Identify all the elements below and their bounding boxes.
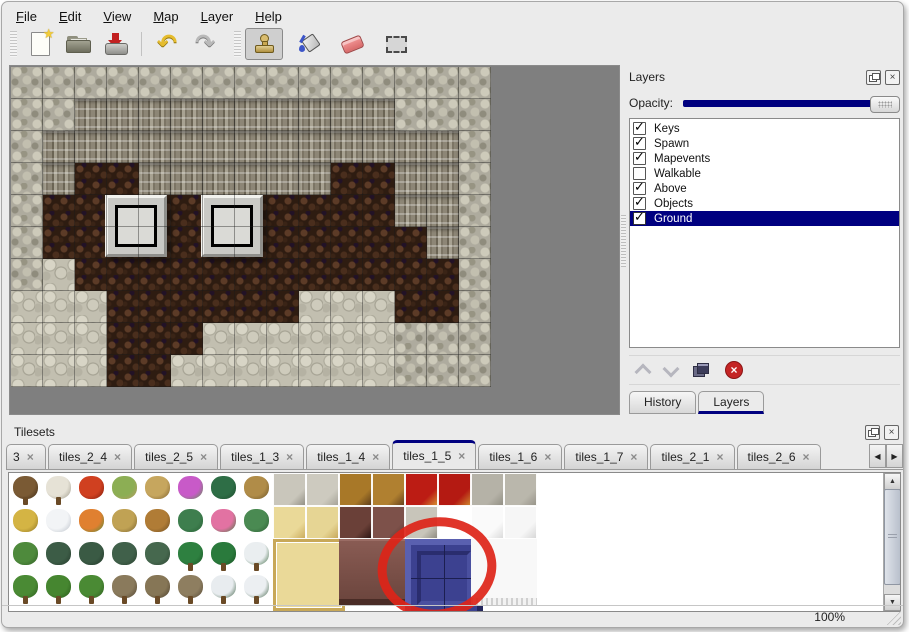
map-tile-scale-stone-wall[interactable] [11,131,43,163]
paint-bucket-icon [297,34,319,54]
tileset-cell-wood-table-top[interactable] [372,473,405,506]
delete-layer-icon[interactable]: × [725,361,743,379]
tile-art-orange-flowers [79,509,104,532]
map-tile-brown-cave-floor[interactable] [171,291,203,323]
map-tile-cliff-face[interactable] [299,163,331,195]
panel-tab-history[interactable]: History [629,391,696,414]
check-icon: ✓ [634,149,645,165]
splitter-handle[interactable] [621,215,626,267]
white-fluff-tile[interactable] [471,539,537,605]
map-tile-cliff-face[interactable] [395,163,427,195]
tileset-cell-hay-mound[interactable] [9,506,42,539]
tileset-cell-lily-pad[interactable] [240,506,273,539]
map-tile-scale-stone-wall[interactable] [427,323,459,355]
map-tile-light-rubble[interactable] [299,291,331,323]
map-tile-scale-stone-wall[interactable] [459,259,491,291]
tile-art-sprouts [13,542,38,565]
map-tile-scale-stone-wall[interactable] [75,67,107,99]
tileset-cell-gray-stone[interactable] [504,473,537,506]
map-tile-brown-cave-floor[interactable] [427,291,459,323]
tileset-cell-orange-flowers[interactable] [75,506,108,539]
menu-help[interactable]: Help [255,9,282,24]
tileset-cell-conifer[interactable] [42,572,75,605]
tab-close-icon[interactable]: × [114,450,121,464]
layer-row-walkable[interactable]: Walkable [630,166,899,181]
map-tile-brown-cave-floor[interactable] [203,291,235,323]
map-tile-cliff-face[interactable] [363,99,395,131]
tile-trunk [254,596,259,604]
tileset-cell-dry-grass[interactable] [108,506,141,539]
layer-name: Above [654,183,687,195]
tileset-cell-stone-floor[interactable] [306,473,339,506]
map-tile-brown-cave-floor[interactable] [235,291,267,323]
map-tile-cliff-face[interactable] [139,131,171,163]
map-tile-scale-stone-wall[interactable] [459,163,491,195]
map-tile-brown-cave-floor[interactable] [395,227,427,259]
tileset-cell-gray-stone[interactable] [471,473,504,506]
map-tile-cliff-face[interactable] [395,195,427,227]
tileset-cell-birch-tree[interactable] [42,473,75,506]
tilesets-panel: Tilesets × 3×tiles_2_4×tiles_2_5×tiles_1… [6,421,903,612]
tileset-cell-mat-corner[interactable] [273,506,306,539]
map-tile-scale-stone-wall[interactable] [11,67,43,99]
map-tile-cliff-face[interactable] [107,99,139,131]
tileset-cell-dead-tree[interactable] [141,572,174,605]
tileset-tab-tiles_1_3[interactable]: tiles_1_3× [220,444,304,469]
tileset-cell-stone-pillar[interactable] [405,506,438,539]
map-tile-brown-cave-floor[interactable] [107,355,139,387]
tileset-cell-snow-pine[interactable] [207,572,240,605]
tileset-cell-leaves[interactable] [141,506,174,539]
map-tile-scale-stone-wall[interactable] [11,195,43,227]
map-tile-brown-cave-floor[interactable] [107,323,139,355]
map-tile-light-rubble[interactable] [203,323,235,355]
map-tile-cliff-face[interactable] [235,99,267,131]
tileset-cell-brown-block[interactable] [372,506,405,539]
map-tile-scale-stone-wall[interactable] [203,67,235,99]
layer-name: Ground [654,213,692,225]
map-tile-light-rubble[interactable] [75,323,107,355]
map-tile-scale-stone-wall[interactable] [11,227,43,259]
map-tile-light-rubble[interactable] [11,355,43,387]
map-tile-brown-cave-floor[interactable] [139,291,171,323]
map-tile-light-rubble[interactable] [43,291,75,323]
tile-art-dry-grass [112,509,137,532]
map-tile-cliff-face[interactable] [171,163,203,195]
map-tile-scale-stone-wall[interactable] [427,355,459,387]
map-tile-brown-cave-floor[interactable] [139,259,171,291]
save-button[interactable] [97,28,135,60]
tileset-tab-tiles_1_4[interactable]: tiles_1_4× [306,444,390,469]
layer-row-ground[interactable]: ✓Ground [630,211,899,226]
tab-close-icon[interactable]: × [27,450,34,464]
opacity-slider[interactable] [681,95,900,111]
vertical-splitter[interactable] [621,65,627,413]
map-tile-scale-stone-wall[interactable] [459,131,491,163]
map-tile-brown-cave-floor[interactable] [299,259,331,291]
map-tile-scale-stone-wall[interactable] [459,67,491,99]
app-window: File Edit View Map Layer Help ★ ↶ ↷ [1,1,904,628]
opacity-slider-handle[interactable] [870,96,900,113]
map-tile-light-rubble[interactable] [299,355,331,387]
map-tile-brown-cave-floor[interactable] [203,259,235,291]
map-tile-scale-stone-wall[interactable] [459,355,491,387]
map-tile-light-rubble[interactable] [331,291,363,323]
tileset-cell-wood-table-top[interactable] [339,473,372,506]
zoom-level: 100% [814,610,845,624]
tilesets-float-icon[interactable] [865,425,880,440]
map-tile-scale-stone-wall[interactable] [395,323,427,355]
move-layer-up-icon[interactable] [635,364,652,381]
large-mat-tile[interactable] [273,539,345,611]
tileset-tab-tiles_2_4[interactable]: tiles_2_4× [48,444,132,469]
map-tile-brown-cave-floor[interactable] [363,259,395,291]
tileset-cell-dark-bush[interactable] [75,539,108,572]
map-tile-scale-stone-wall[interactable] [11,259,43,291]
map-tile-brown-cave-floor[interactable] [267,259,299,291]
map-tile-cliff-face[interactable] [139,163,171,195]
tileset-cell-dead-tree[interactable] [9,473,42,506]
save-icon [104,33,128,55]
tab-close-icon[interactable]: × [372,450,379,464]
tile-trunk [56,497,61,505]
map-tile-scale-stone-wall[interactable] [459,291,491,323]
map-tile-light-rubble[interactable] [363,291,395,323]
tile-art-dead-tree [112,575,137,598]
duplicate-layer-icon[interactable] [693,363,709,377]
tab-close-icon[interactable]: × [630,450,637,464]
map-tile-scale-stone-wall[interactable] [11,99,43,131]
map-tile-brown-cave-floor[interactable] [331,259,363,291]
map-tile-brown-cave-floor[interactable] [331,163,363,195]
tab-close-icon[interactable]: × [286,450,293,464]
map-tile-brown-cave-floor[interactable] [331,227,363,259]
eraser-tool-button[interactable] [333,28,371,60]
redo-button[interactable]: ↷ [186,28,224,60]
map-tile-brown-cave-floor[interactable] [171,259,203,291]
tileset-cell-red-carpet[interactable] [438,473,471,506]
map-tile-cliff-face[interactable] [267,131,299,163]
eraser-icon [340,34,364,54]
map-tile-brown-cave-floor[interactable] [171,227,203,259]
tileset-cell-palm-tree[interactable] [174,539,207,572]
map-tile-brown-cave-floor[interactable] [107,291,139,323]
select-tool-button[interactable] [377,28,415,60]
map-tile-brown-cave-floor[interactable] [395,291,427,323]
layer-checkbox[interactable]: ✓ [633,212,646,225]
map-tile-cliff-face[interactable] [299,99,331,131]
map-tile-cliff-face[interactable] [427,131,459,163]
tileset-cell-dead-shrub[interactable] [240,473,273,506]
tile-trunk [221,563,226,571]
map-tile-scale-stone-wall[interactable] [299,67,331,99]
menu-layer[interactable]: Layer [201,9,234,24]
map-tile-light-rubble[interactable] [235,323,267,355]
tileset-tab-tiles_1_5[interactable]: tiles_1_5× [392,440,476,469]
tileset-cell-red-flower[interactable] [75,473,108,506]
map-tile-brown-cave-floor[interactable] [427,259,459,291]
map-tile-brown-cave-floor[interactable] [107,259,139,291]
map-tile-light-rubble[interactable] [11,323,43,355]
large-table-tile[interactable] [339,539,405,605]
new-file-button[interactable]: ★ [21,28,59,60]
map-tile-scale-stone-wall[interactable] [11,163,43,195]
map-tile-brown-cave-floor[interactable] [299,227,331,259]
map-tile-brown-cave-floor[interactable] [75,227,107,259]
map-tile-cliff-face[interactable] [427,163,459,195]
tileset-cell-snow-mound[interactable] [42,506,75,539]
menu-file[interactable]: File [16,9,37,24]
map-tile-brown-cave-floor[interactable] [395,259,427,291]
map-tile-cliff-face[interactable] [75,131,107,163]
layer-row-above[interactable]: ✓Above [630,181,899,196]
fill-tool-button[interactable] [289,28,327,60]
map-tile-brown-cave-floor[interactable] [171,323,203,355]
tileset-cell-snow-pine[interactable] [240,572,273,605]
map-tile-light-rubble[interactable] [235,355,267,387]
map-tile-light-rubble[interactable] [331,355,363,387]
tileset-tab-tiles_2_5[interactable]: tiles_2_5× [134,444,218,469]
map-tile-brown-cave-floor[interactable] [107,163,139,195]
tileset-cell-conifer[interactable] [75,572,108,605]
map-tile-cliff-face[interactable] [43,163,75,195]
tile-art-conifer [79,575,104,598]
map-tile-cliff-face[interactable] [267,99,299,131]
map-tile-cliff-face[interactable] [203,131,235,163]
map-tile-brown-cave-floor[interactable] [363,163,395,195]
tileset-cell-stone-pillar[interactable] [438,506,471,539]
tile-art-red-flower [79,476,104,499]
tab-close-icon[interactable]: × [716,450,723,464]
map-tile-scale-stone-wall[interactable] [139,67,171,99]
tileset-cell-red-carpet[interactable] [405,473,438,506]
scroll-up-button[interactable]: ▲ [884,473,901,490]
layer-row-mapevents[interactable]: ✓Mapevents [630,151,899,166]
tile-art-palm-tree [211,542,236,565]
map-tile-light-rubble[interactable] [267,355,299,387]
tileset-cell-dark-bush[interactable] [108,539,141,572]
map-tile-light-rubble[interactable] [43,323,75,355]
map-tile-cliff-face[interactable] [171,99,203,131]
tab-close-icon[interactable]: × [544,450,551,464]
tab-close-icon[interactable]: × [200,450,207,464]
tileset-cell-snow-tree[interactable] [240,539,273,572]
map-tile-brown-cave-floor[interactable] [363,227,395,259]
tileset-cell-palm-tree[interactable] [207,539,240,572]
tileset-cell-bush[interactable] [141,539,174,572]
tileset-cell-fern[interactable] [207,473,240,506]
resize-grip[interactable] [886,610,901,625]
map-tile-brown-cave-floor[interactable] [235,259,267,291]
map-canvas[interactable] [9,65,620,415]
tileset-cell-mat[interactable] [306,506,339,539]
map-tile-scale-stone-wall[interactable] [107,67,139,99]
map-tile-brown-cave-floor[interactable] [171,195,203,227]
layer-list[interactable]: ✓Keys✓Spawn✓MapeventsWalkable✓Above✓Obje… [629,118,900,348]
tileset-cell-stone-floor-corner[interactable] [273,473,306,506]
toolbar-grip[interactable] [10,31,17,57]
map-tile-brown-cave-floor[interactable] [75,195,107,227]
tile-art-conifer [46,575,71,598]
layer-row-keys[interactable]: ✓Keys [630,121,899,136]
map-tile-scale-stone-wall[interactable] [459,99,491,131]
tileset-cell-dark-chair[interactable] [339,506,372,539]
map-tile-scale-stone-wall[interactable] [331,67,363,99]
tile-art-lily-pad [244,509,269,532]
toolbar-grip-2[interactable] [234,31,241,57]
float-panel-icon[interactable] [866,70,881,85]
map-tile-cliff-face[interactable] [299,131,331,163]
move-layer-down-icon[interactable] [663,361,680,378]
map-tile-scale-stone-wall[interactable] [395,67,427,99]
layer-checkbox[interactable]: ✓ [633,152,646,165]
open-file-button[interactable] [59,28,97,60]
map-tile-brown-cave-floor[interactable] [331,195,363,227]
map-tile-cliff-face[interactable] [107,131,139,163]
layer-row-objects[interactable]: ✓Objects [630,196,899,211]
map-tile-light-rubble[interactable] [171,355,203,387]
tab-close-icon[interactable]: × [458,449,465,463]
map-tile-light-rubble[interactable] [363,323,395,355]
tileset-cell-dark-bush[interactable] [42,539,75,572]
map-tile-scale-stone-wall[interactable] [267,67,299,99]
map-tile-light-rubble[interactable] [299,323,331,355]
tileset-cell-sprouts[interactable] [9,539,42,572]
tab-label: 3 [13,450,20,464]
tab-close-icon[interactable]: × [803,450,810,464]
map-tile-cliff-face[interactable] [139,99,171,131]
tile-art-dead-tree [178,575,203,598]
map-tile-scale-stone-wall[interactable] [459,195,491,227]
map-tile-scale-stone-wall[interactable] [363,67,395,99]
map-tile-cliff-face[interactable] [235,131,267,163]
map-tile-scale-stone-wall[interactable] [459,227,491,259]
tileset-cell-conifer[interactable] [9,572,42,605]
map-tile-cliff-face[interactable] [427,195,459,227]
tileset-cell-trunk[interactable] [141,473,174,506]
tab-scroll-right-button[interactable]: ▶ [886,444,903,468]
map-tile-scale-stone-wall[interactable] [43,99,75,131]
map-tile-brown-cave-floor[interactable] [75,163,107,195]
toolbar: ★ ↶ ↷ [2,27,903,61]
map-tile-cliff-face[interactable] [395,131,427,163]
map-tile-cliff-face[interactable] [363,131,395,163]
map-tile-cliff-face[interactable] [171,131,203,163]
map-tile-scale-stone-wall[interactable] [395,99,427,131]
tile-trunk [188,563,193,571]
map-tile-cliff-face[interactable] [203,163,235,195]
map-tile-brown-cave-floor[interactable] [139,355,171,387]
map-tile-brown-cave-floor[interactable] [267,227,299,259]
map-tile-light-rubble[interactable] [11,291,43,323]
tileset-tab-tiles_2_6[interactable]: tiles_2_6× [737,444,821,469]
panel-tab-layers[interactable]: Layers [698,391,764,414]
menu-edit[interactable]: Edit [59,9,81,24]
tile-art-palm-tree [178,542,203,565]
menu-view[interactable]: View [103,9,131,24]
tileset-cell-white-fur[interactable] [504,506,537,539]
map-tile-scale-stone-wall[interactable] [459,323,491,355]
tileset-cell-lily-pads[interactable] [174,506,207,539]
tileset-content[interactable]: ▲ ▼ [8,472,901,612]
map-tile-cliff-face[interactable] [331,99,363,131]
menu-map[interactable]: Map [153,9,178,24]
map-tile-cliff-face[interactable] [427,227,459,259]
map-tile-brown-cave-floor[interactable] [299,195,331,227]
tab-label: tiles_2_4 [59,450,107,464]
map-tile-cliff-face[interactable] [331,131,363,163]
tile-trunk [221,596,226,604]
map-tile-light-rubble[interactable] [43,355,75,387]
layer-row-spawn[interactable]: ✓Spawn [630,136,899,151]
tile-art-snow-pine [211,575,236,598]
map-tile-cliff-face[interactable] [267,163,299,195]
map-tile-grid[interactable] [11,67,491,387]
stone-platform[interactable] [105,195,167,257]
map-tile-light-rubble[interactable] [75,355,107,387]
close-panel-icon[interactable]: × [885,70,900,85]
map-tile-brown-cave-floor[interactable] [363,195,395,227]
map-tile-scale-stone-wall[interactable] [171,67,203,99]
map-tile-brown-cave-floor[interactable] [139,323,171,355]
map-tile-brown-cave-floor[interactable] [267,195,299,227]
tileset-cell-pink-flowers[interactable] [207,506,240,539]
map-tile-scale-stone-wall[interactable] [427,99,459,131]
tilesets-close-icon[interactable]: × [884,425,899,440]
tileset-tab-tiles_1_7[interactable]: tiles_1_7× [564,444,648,469]
map-tile-light-rubble[interactable] [267,323,299,355]
undo-button[interactable]: ↶ [148,28,186,60]
map-tile-cliff-face[interactable] [235,163,267,195]
tileset-cell-stump[interactable] [108,473,141,506]
map-tile-scale-stone-wall[interactable] [235,67,267,99]
tileset-tab-tiles_2_1[interactable]: tiles_2_1× [650,444,734,469]
tile-art-dead-tree [145,575,170,598]
stone-platform[interactable] [201,195,263,257]
map-tile-brown-cave-floor[interactable] [43,227,75,259]
layers-panel-titlebar: Layers × [629,68,900,86]
tileset-cell-dead-tree[interactable] [108,572,141,605]
map-tile-brown-cave-floor[interactable] [75,259,107,291]
map-tile-scale-stone-wall[interactable] [395,355,427,387]
map-tile-scale-stone-wall[interactable] [43,67,75,99]
map-tile-cliff-face[interactable] [75,99,107,131]
tileset-grid[interactable] [9,473,537,611]
map-tile-light-rubble[interactable] [363,355,395,387]
undo-icon: ↶ [157,34,177,54]
map-tile-scale-stone-wall[interactable] [427,67,459,99]
map-tile-light-rubble[interactable] [75,291,107,323]
map-tile-light-rubble[interactable] [331,323,363,355]
stamp-tool-button[interactable] [245,28,283,60]
tab-scroll-left-button[interactable]: ◀ [869,444,886,468]
map-tile-light-rubble[interactable] [43,259,75,291]
tileset-cell-dead-tree[interactable] [174,572,207,605]
tab-label: tiles_1_3 [231,450,279,464]
tileset-tab-tiles_1_6[interactable]: tiles_1_6× [478,444,562,469]
map-tile-cliff-face[interactable] [43,131,75,163]
map-tile-cliff-face[interactable] [203,99,235,131]
map-tile-brown-cave-floor[interactable] [43,195,75,227]
tileset-scrollbar[interactable]: ▲ ▼ [883,473,900,611]
scrollbar-thumb[interactable] [884,489,901,585]
tileset-tab-3[interactable]: 3× [6,444,46,469]
map-tile-light-rubble[interactable] [203,355,235,387]
tileset-cell-purple-flowers[interactable] [174,473,207,506]
map-tile-brown-cave-floor[interactable] [267,291,299,323]
opacity-slider-track[interactable] [683,100,896,107]
tileset-cell-white-fur[interactable] [471,506,504,539]
